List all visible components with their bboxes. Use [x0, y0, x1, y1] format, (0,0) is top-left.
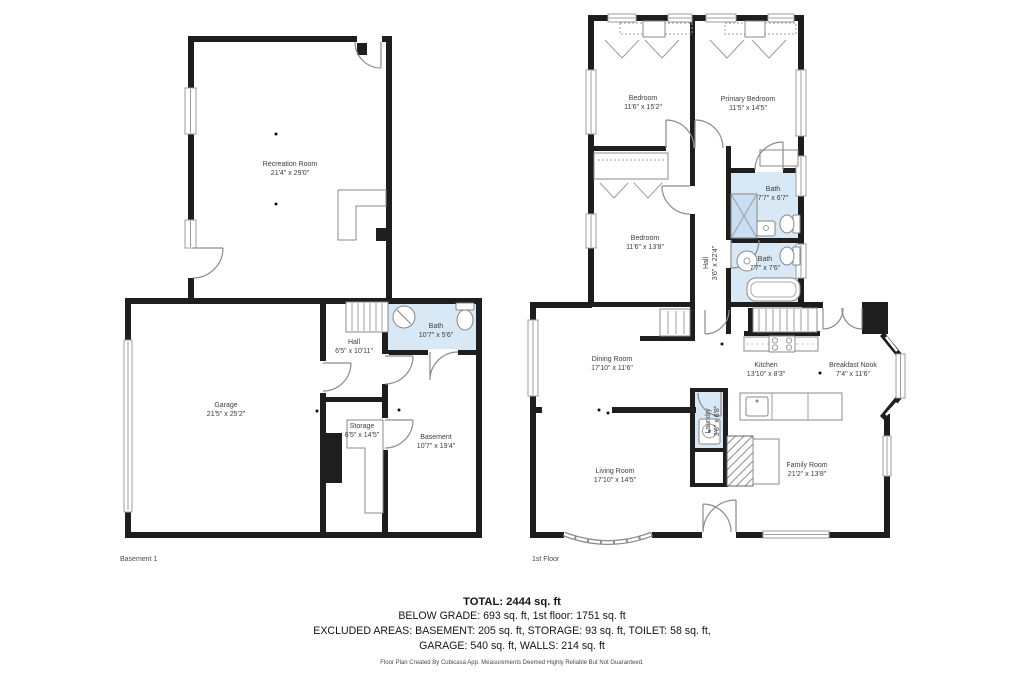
room-label-family-room: Family Room 21'2" x 13'8" — [786, 461, 827, 479]
room-name: Basement — [417, 433, 455, 442]
shower-icon — [731, 194, 757, 238]
window-icon — [883, 436, 891, 476]
sink-icon — [746, 397, 768, 416]
room-dims: 6'5" x 14'5" — [345, 431, 380, 440]
summary-below-grade: BELOW GRADE: 693 sq. ft, 1st floor: 1751… — [0, 609, 1024, 624]
room-dims: 6'5" x 10'11" — [335, 347, 373, 356]
room-name: Garage — [207, 401, 245, 410]
room-dims: 17'10" x 14'5" — [594, 476, 636, 485]
room-dims: 7'4" x 11'6" — [829, 370, 877, 379]
room-label-storage: Storage 6'5" x 14'5" — [345, 422, 380, 440]
summary-excluded-1: EXCLUDED AREAS: BASEMENT: 205 sq. ft, ST… — [0, 624, 1024, 639]
garage-door-icon — [124, 340, 132, 512]
stove-icon — [769, 336, 795, 352]
room-name: Dining Room — [591, 355, 633, 364]
room-label-recreation-room: Recreation Room 21'4" x 29'0" — [263, 160, 317, 178]
room-name: Family Room — [786, 461, 827, 470]
floor-title-basement: Basement 1 — [120, 556, 157, 563]
window-icon — [185, 88, 196, 134]
floor-plan-drawing — [0, 0, 1024, 683]
window-icon — [768, 14, 794, 22]
pantry-icon — [660, 309, 690, 336]
window-icon — [586, 214, 596, 248]
summary-excluded-2: GARAGE: 540 sq. ft, WALLS: 214 sq. ft — [0, 639, 1024, 654]
room-name: Bedroom — [624, 94, 662, 103]
room-dims: 21'4" x 29'0" — [263, 169, 317, 178]
room-dims: 21'2" x 13'8" — [786, 470, 827, 479]
basement-door-gaps — [186, 34, 458, 450]
room-label-basement-room: Basement 10'7" x 19'4" — [417, 433, 455, 451]
kitchen-island — [740, 393, 842, 420]
room-label-living-room: Living Room 17'10" x 14'5" — [594, 467, 636, 485]
room-name: Kitchen — [747, 361, 785, 370]
room-label-hall: Hall 3'6" x 22'4" — [702, 246, 720, 281]
room-dims: 3'6" x 6'8" — [713, 406, 722, 437]
room-dims: 21'5" x 25'2" — [207, 410, 245, 419]
room-label-basement-hall: Hall 6'5" x 10'11" — [335, 338, 373, 356]
room-label-garage: Garage 21'5" x 25'2" — [207, 401, 245, 419]
toilet-icon — [780, 247, 800, 265]
room-name: Laundry — [704, 406, 713, 437]
basement-plan — [124, 34, 482, 538]
room-label-laundry: Laundry 3'6" x 6'8" — [704, 406, 722, 437]
window-icon — [668, 14, 692, 22]
room-name: Bedroom — [626, 234, 664, 243]
toilet-icon — [780, 215, 800, 233]
room-dims: 11'6" x 15'2" — [624, 103, 662, 112]
window-icon — [586, 70, 596, 134]
room-dims: 10'7" x 5'6" — [419, 331, 454, 340]
room-label-bath-lower: Bath 7'7" x 7'6" — [750, 255, 781, 273]
bow-window-icon — [564, 534, 652, 543]
window-icon — [185, 220, 196, 248]
room-name: Primary Bedroom — [721, 95, 775, 104]
window-icon — [608, 14, 636, 22]
room-dims: 17'10" x 11'6" — [591, 364, 633, 373]
area-summary: TOTAL: 2444 sq. ft BELOW GRADE: 693 sq. … — [0, 595, 1024, 653]
toilet-icon — [456, 303, 474, 330]
room-name: Living Room — [594, 467, 636, 476]
room-label-bedroom-1: Bedroom 11'6" x 15'2" — [624, 94, 662, 112]
room-label-kitchen: Kitchen 13'10" x 8'3" — [747, 361, 785, 379]
room-label-bath-upper: Bath 7'7" x 6'7" — [758, 185, 789, 203]
room-label-primary-bedroom: Primary Bedroom 11'5" x 14'5" — [721, 95, 775, 113]
basement-walls — [125, 36, 482, 538]
window-icon — [796, 70, 806, 136]
room-dims: 7'7" x 7'6" — [750, 264, 781, 273]
room-dims: 13'10" x 8'3" — [747, 370, 785, 379]
first-floor-stairs-icon — [753, 308, 817, 332]
bathtub-icon — [747, 278, 800, 301]
room-dims: 11'5" x 14'5" — [721, 104, 775, 113]
room-dims: 11'6" x 13'8" — [626, 243, 664, 252]
room-name: Bath — [419, 322, 454, 331]
window-icon — [706, 14, 736, 22]
shower-icon — [393, 306, 415, 328]
disclaimer-text: Floor Plan Created By Cubicasa App. Meas… — [0, 660, 1024, 666]
room-dims: 10'7" x 19'4" — [417, 442, 455, 451]
kitchen-counter — [744, 336, 818, 352]
room-name: Storage — [345, 422, 380, 431]
sink-icon — [757, 221, 775, 236]
window-icon — [528, 320, 538, 396]
room-name: Breakfast Nook — [829, 361, 877, 370]
room-name: Hall — [335, 338, 373, 347]
room-dims: 7'7" x 6'7" — [758, 194, 789, 203]
window-icon — [763, 531, 829, 538]
basement-stairs-icon — [346, 302, 388, 332]
room-dims: 3'6" x 22'4" — [711, 246, 720, 281]
room-name: Bath — [750, 255, 781, 264]
room-name: Recreation Room — [263, 160, 317, 169]
floor-title-first-floor: 1st Floor — [532, 556, 559, 563]
room-name: Hall — [702, 246, 711, 281]
bay-window-icon — [896, 354, 905, 398]
room-label-breakfast-nook: Breakfast Nook 7'4" x 11'6" — [829, 361, 877, 379]
summary-total: TOTAL: 2444 sq. ft — [0, 595, 1024, 609]
fireplace-icon — [727, 436, 779, 486]
room-label-basement-bath: Bath 10'7" x 5'6" — [419, 322, 454, 340]
floor-plan-page: Recreation Room 21'4" x 29'0" Garage 21'… — [0, 0, 1024, 683]
room-label-bedroom-2: Bedroom 11'6" x 13'8" — [626, 234, 664, 252]
room-name: Bath — [758, 185, 789, 194]
room-label-dining-room: Dining Room 17'10" x 11'6" — [591, 355, 633, 373]
